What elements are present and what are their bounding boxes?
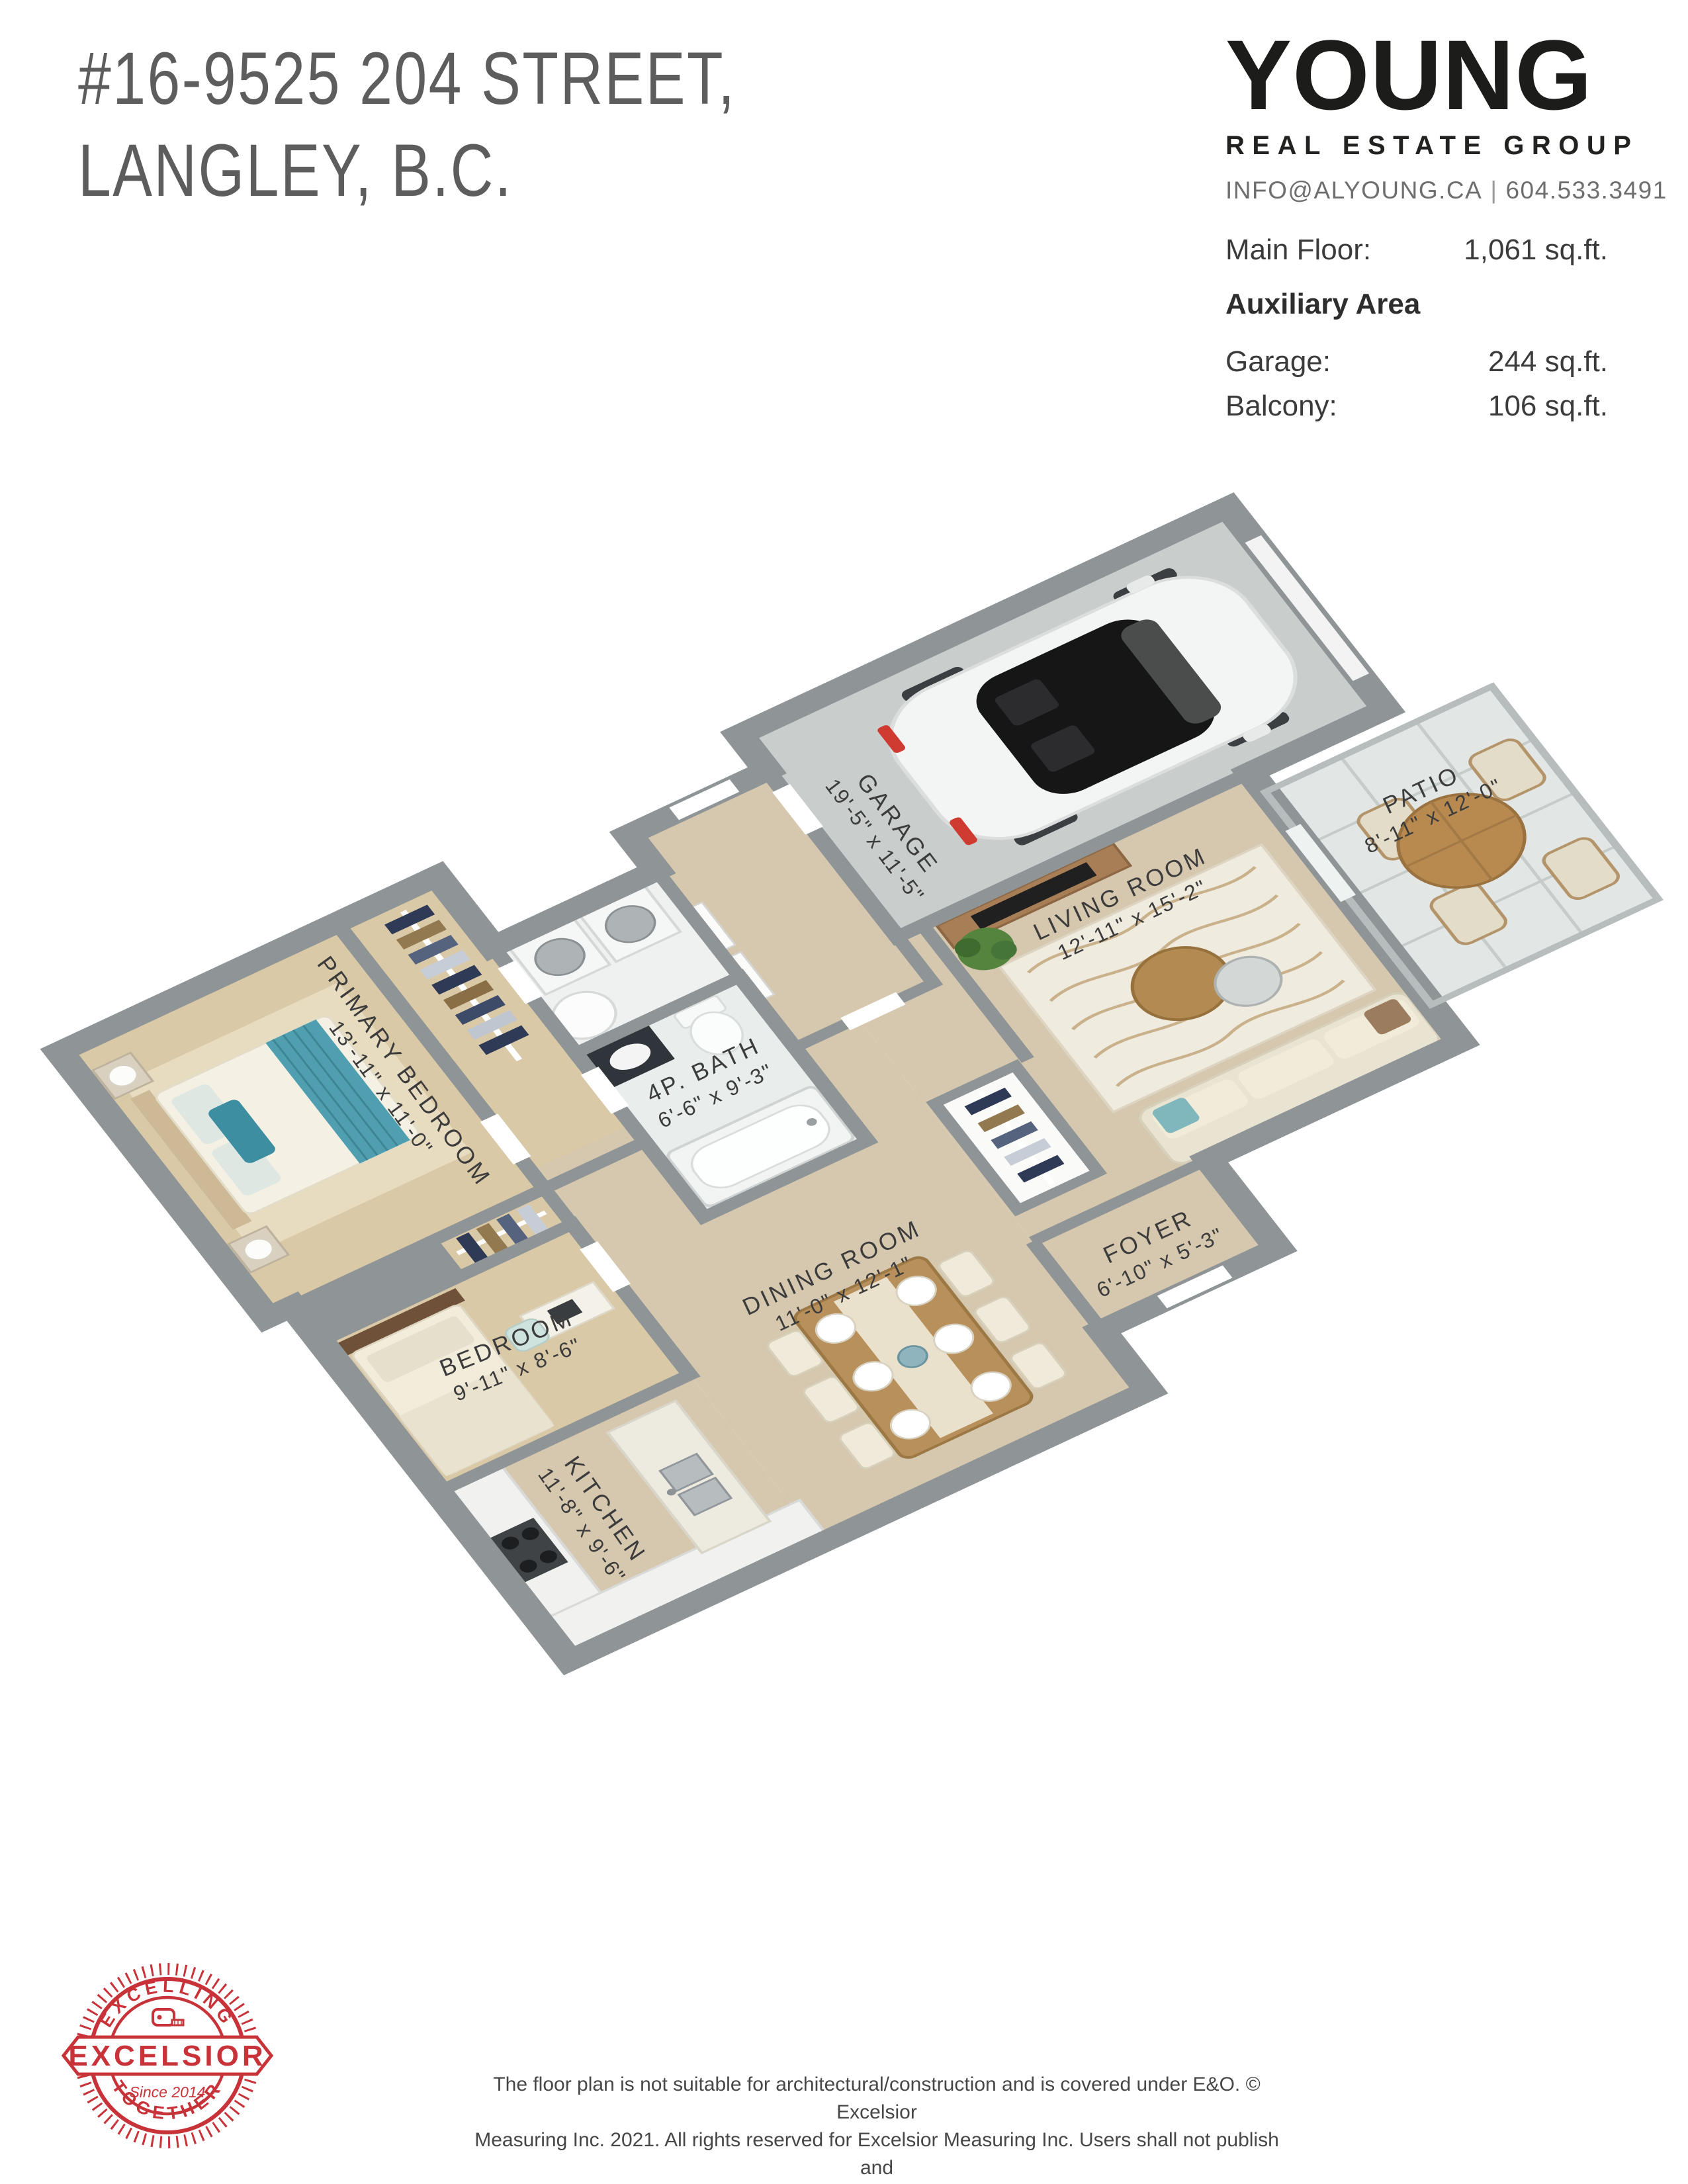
disclaimer: The floor plan is not suitable for archi…: [457, 2071, 1297, 2184]
plan-geometry: [60, 465, 1688, 1673]
excelsior-badge: · EXCELLING · · TOGETHER · EXCELSIOR - S…: [58, 1946, 277, 2165]
badge-banner-text: EXCELSIOR: [68, 2040, 266, 2072]
disclaimer-line-1: The floor plan is not suitable for archi…: [457, 2071, 1297, 2126]
floor-plan: PRIMARY BEDROOM 13'-11" x 11'-0" BEDROOM…: [0, 0, 1688, 2184]
badge-since-text: - Since 2014 -: [120, 2083, 215, 2101]
flyer-page: #16-9525 204 STREET, LANGLEY, B.C. YOUNG…: [0, 0, 1688, 2184]
disclaimer-line-2: Measuring Inc. 2021. All rights reserved…: [457, 2126, 1297, 2182]
